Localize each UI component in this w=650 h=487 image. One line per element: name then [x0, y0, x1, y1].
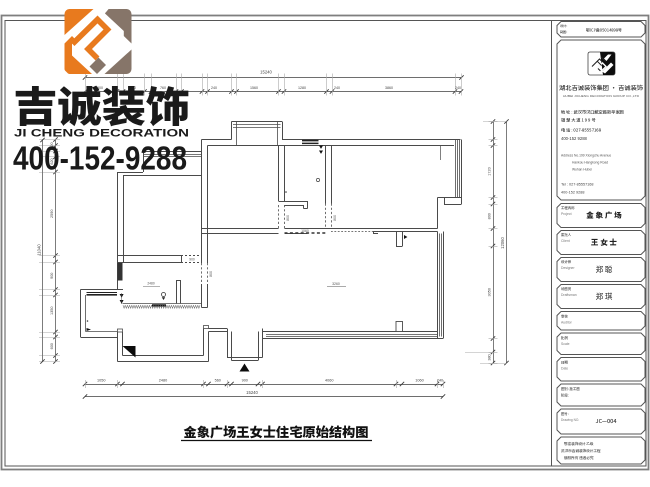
svg-text:Project: Project [561, 212, 572, 216]
svg-text:工程名称: 工程名称 [561, 205, 575, 210]
svg-text:Hankou Hangkong Road: Hankou Hangkong Road [572, 161, 608, 165]
svg-text:15240: 15240 [260, 70, 272, 75]
svg-text:900: 900 [50, 273, 54, 279]
svg-text:1560: 1560 [250, 86, 258, 90]
svg-text:15240: 15240 [246, 390, 258, 395]
svg-text:1050: 1050 [97, 379, 105, 383]
svg-text:800: 800 [488, 213, 492, 219]
svg-text:1720: 1720 [488, 167, 492, 175]
svg-text:吉诚装饰: 吉诚装饰 [13, 74, 190, 135]
svg-text:2480: 2480 [159, 379, 167, 383]
svg-text:900: 900 [189, 258, 195, 262]
svg-text:电 话 : 027-85557168: 电 话 : 027-85557168 [561, 128, 602, 134]
svg-text:审核: 审核 [561, 314, 568, 319]
svg-text:王 女 士: 王 女 士 [591, 237, 617, 248]
svg-text:240: 240 [455, 86, 461, 90]
svg-text:1060: 1060 [301, 229, 309, 233]
svg-text:郑 琪: 郑 琪 [596, 291, 613, 302]
svg-text:JC—004: JC—004 [595, 417, 617, 425]
svg-text:1280: 1280 [298, 86, 306, 90]
svg-text:地 址 : 武汉市汉口航空路新华家园: 地 址 : 武汉市汉口航空路新华家园 [560, 109, 624, 116]
svg-text:380: 380 [488, 354, 492, 360]
svg-text:240: 240 [211, 86, 217, 90]
svg-text:版权所有 违者必究: 版权所有 违者必究 [563, 455, 594, 461]
svg-text:JI CHENG DECORATION: JI CHENG DECORATION [14, 128, 189, 140]
svg-text:图号:: 图号: [561, 411, 569, 416]
svg-text:560: 560 [215, 379, 221, 383]
svg-text:Draftsman: Draftsman [561, 293, 577, 297]
svg-text:图别: 施工图: 图别: 施工图 [561, 386, 580, 391]
svg-text:雄 楚 大 道 1 9 9 号: 雄 楚 大 道 1 9 9 号 [561, 118, 596, 124]
svg-text:1350: 1350 [50, 307, 54, 315]
svg-text:800: 800 [286, 215, 290, 221]
svg-text:Wuhan Hubei: Wuhan Hubei [572, 168, 592, 172]
svg-text:Scale: Scale [561, 342, 570, 346]
svg-text:设计师: 设计师 [560, 259, 572, 264]
svg-text:12060: 12060 [500, 237, 505, 249]
svg-text:1060: 1060 [415, 379, 423, 383]
svg-text:设计:: 设计: [559, 23, 567, 28]
svg-text:400-152-9288: 400-152-9288 [13, 140, 187, 177]
svg-text:800: 800 [209, 271, 213, 277]
svg-text:金 象 广 场: 金 象 广 场 [585, 210, 622, 221]
svg-text:240: 240 [437, 379, 443, 383]
svg-text:HUBEI JICHENG DECORATION GROUP: HUBEI JICHENG DECORATION GROUP CO.,LTD [563, 94, 640, 98]
svg-text:比例: 比例 [561, 335, 568, 340]
svg-text:Auditor: Auditor [561, 321, 573, 325]
svg-text:3050: 3050 [488, 288, 492, 296]
svg-text:湖北吉诚装饰集团 · 吉诚装饰: 湖北吉诚装饰集团 · 吉诚装饰 [559, 83, 644, 92]
svg-text:委托人: 委托人 [560, 232, 572, 237]
svg-text:3260: 3260 [332, 282, 340, 286]
svg-text:武汉市吉诚装饰设计工程: 武汉市吉诚装饰设计工程 [561, 448, 601, 454]
svg-text:11040: 11040 [37, 244, 42, 256]
svg-text:2590: 2590 [50, 210, 54, 218]
svg-text:绘图员: 绘图员 [561, 286, 572, 291]
svg-text:Address No.199 Xiongchu Avenue: Address No.199 Xiongchu Avenue [561, 154, 611, 158]
svg-text:240: 240 [334, 86, 340, 90]
svg-text:金象广场王女士住宅原始结构图: 金象广场王女士住宅原始结构图 [184, 422, 369, 441]
svg-text:3860: 3860 [385, 86, 393, 90]
svg-text:日期: 日期 [561, 360, 568, 365]
svg-text:2480: 2480 [147, 282, 155, 286]
svg-text:900: 900 [242, 379, 248, 383]
svg-text:800: 800 [333, 215, 337, 221]
svg-text:400-152 9288: 400-152 9288 [561, 191, 584, 195]
svg-text:Drawing NO.: Drawing NO. [561, 418, 579, 422]
svg-text:Designer: Designer [561, 266, 575, 270]
svg-text:Client: Client [561, 239, 570, 243]
svg-text:4060: 4060 [325, 379, 333, 383]
svg-text:郑 聪: 郑 聪 [596, 264, 613, 275]
svg-text:Date: Date [561, 367, 568, 371]
svg-text:鄂建装饰设计 乙级: 鄂建装饰设计 乙级 [564, 441, 594, 447]
svg-text:Tel : 027-85557168: Tel : 027-85557168 [561, 183, 594, 187]
svg-text:鄂ICP备05014898号: 鄂ICP备05014898号 [586, 28, 622, 34]
svg-text:阶段:: 阶段: [561, 393, 569, 398]
svg-text:600: 600 [50, 343, 54, 349]
svg-text:400-152 9288: 400-152 9288 [561, 136, 588, 141]
svg-text:制图:: 制图: [560, 29, 567, 34]
